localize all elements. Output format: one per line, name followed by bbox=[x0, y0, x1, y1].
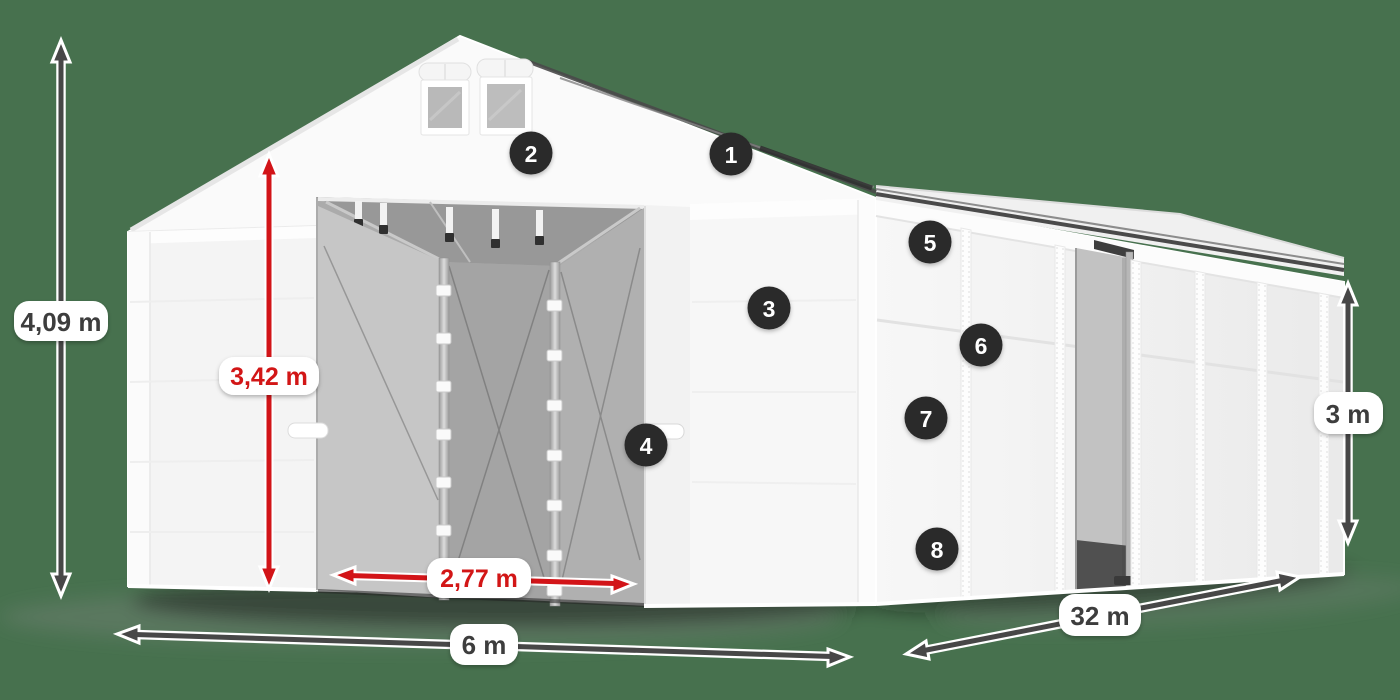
interior-partition bbox=[447, 262, 551, 600]
marker-1-number: 1 bbox=[725, 142, 738, 168]
interior-right-panel bbox=[559, 208, 644, 604]
interior-left-door-leaf bbox=[318, 206, 443, 598]
marker-5-number: 5 bbox=[924, 230, 937, 256]
marker-4-number: 4 bbox=[640, 433, 653, 459]
clear-height-label: 3,42 m bbox=[219, 357, 319, 395]
marker-6-number: 6 bbox=[975, 333, 988, 359]
front-left-wall-panel bbox=[128, 226, 316, 590]
total-height-label: 4,09 m bbox=[14, 301, 108, 341]
width-label: 6 m bbox=[450, 624, 518, 665]
marker-4[interactable]: 4 bbox=[625, 424, 668, 467]
marker-7-number: 7 bbox=[920, 406, 933, 432]
total-height-value: 4,09 m bbox=[21, 307, 102, 337]
marker-5[interactable]: 5 bbox=[909, 221, 952, 264]
marker-8[interactable]: 8 bbox=[916, 528, 959, 571]
tent-dimensions-diagram: 4,09 m 3,42 m 2,77 m 6 m 32 m 3 m 1 2 3 … bbox=[0, 0, 1400, 700]
clear-height-value: 3,42 m bbox=[230, 363, 308, 391]
width-value: 6 m bbox=[462, 630, 507, 660]
marker-6[interactable]: 6 bbox=[960, 324, 1003, 367]
marker-2-number: 2 bbox=[525, 141, 538, 167]
marker-3[interactable]: 3 bbox=[748, 287, 791, 330]
side-height-value: 3 m bbox=[1326, 399, 1371, 429]
door-width-label: 2,77 m bbox=[427, 558, 531, 598]
marker-8-number: 8 bbox=[931, 537, 944, 563]
marker-2[interactable]: 2 bbox=[510, 132, 553, 175]
tent-illustration-canvas: 4,09 m 3,42 m 2,77 m 6 m 32 m 3 m 1 2 3 … bbox=[0, 0, 1400, 700]
roof-vent-window-left bbox=[419, 63, 471, 135]
marker-1[interactable]: 1 bbox=[710, 133, 753, 176]
front-doorway-interior bbox=[316, 197, 648, 606]
roof-vent-window-right bbox=[477, 59, 533, 135]
length-value: 32 m bbox=[1070, 601, 1129, 631]
marker-3-number: 3 bbox=[763, 296, 776, 322]
sliding-door-opening bbox=[1076, 240, 1136, 592]
left-door-handle bbox=[288, 423, 328, 438]
marker-7[interactable]: 7 bbox=[905, 397, 948, 440]
length-label: 32 m bbox=[1059, 594, 1141, 636]
front-right-corner-panel bbox=[690, 198, 876, 607]
side-height-label: 3 m bbox=[1314, 392, 1383, 434]
front-right-door-leaf bbox=[644, 205, 690, 607]
door-width-value: 2,77 m bbox=[440, 565, 518, 593]
